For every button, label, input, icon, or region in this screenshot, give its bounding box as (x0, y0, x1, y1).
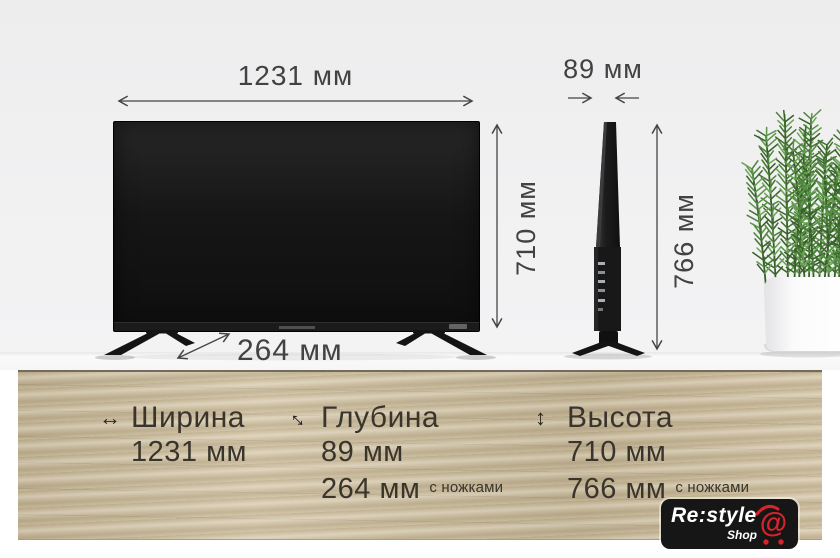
info-height-value-2: 766 мм (567, 473, 666, 505)
front-width-label: 1231 мм (113, 60, 478, 92)
width-arrows-icon: ↔ (99, 401, 131, 435)
info-width-heading: ↔ Ширина (99, 401, 247, 435)
info-depth-heading: ↔ Глубина (289, 401, 503, 435)
info-height-title: Высота (567, 401, 673, 435)
info-column-height: ↕ Высота 710 мм 766 ммс ножками (535, 401, 749, 507)
tv-front-view (113, 121, 480, 332)
tv-uhd-badge (449, 324, 467, 329)
info-depth-value-row-1: 89 мм (289, 435, 503, 470)
info-depth-value-2: 264 мм (321, 473, 420, 505)
info-depth-title: Глубина (321, 401, 439, 435)
info-width-value: 1231 мм (131, 436, 247, 468)
side-depth-label: 89 мм (547, 54, 659, 85)
info-height-value-row-1: 710 мм (535, 435, 749, 470)
info-height-note: с ножками (675, 479, 749, 496)
stand-depth-label: 264 мм (237, 334, 343, 368)
info-column-depth: ↔ Глубина 89 мм 264 ммс ножками (289, 401, 503, 507)
info-depth-note: с ножками (429, 479, 503, 496)
restyle-shop-logo: Re:style Shop @ (661, 499, 798, 549)
logo-brand-text: Re:style (671, 504, 757, 528)
info-width-title: Ширина (131, 401, 245, 435)
info-height-value-1: 710 мм (567, 436, 666, 468)
info-column-width: ↔ Ширина 1231 мм (99, 401, 247, 470)
height-arrows-icon: ↕ (535, 401, 567, 435)
tv-dimensions-infographic: 1231 мм 89 мм 710 мм 766 мм 264 мм ↔ Шир… (0, 0, 840, 558)
side-height-label: 766 мм (669, 176, 701, 306)
tv-brand-mark (279, 326, 315, 329)
info-height-heading: ↕ Высота (535, 401, 749, 435)
front-height-label: 710 мм (511, 163, 543, 293)
info-width-value-row: 1231 мм (99, 435, 247, 470)
cart-at-icon: @ (752, 502, 794, 548)
info-depth-value-row-2: 264 ммс ножками (289, 470, 503, 507)
shelf-surface (0, 352, 840, 370)
info-depth-value-1: 89 мм (321, 436, 404, 468)
at-glyph: @ (759, 507, 786, 538)
